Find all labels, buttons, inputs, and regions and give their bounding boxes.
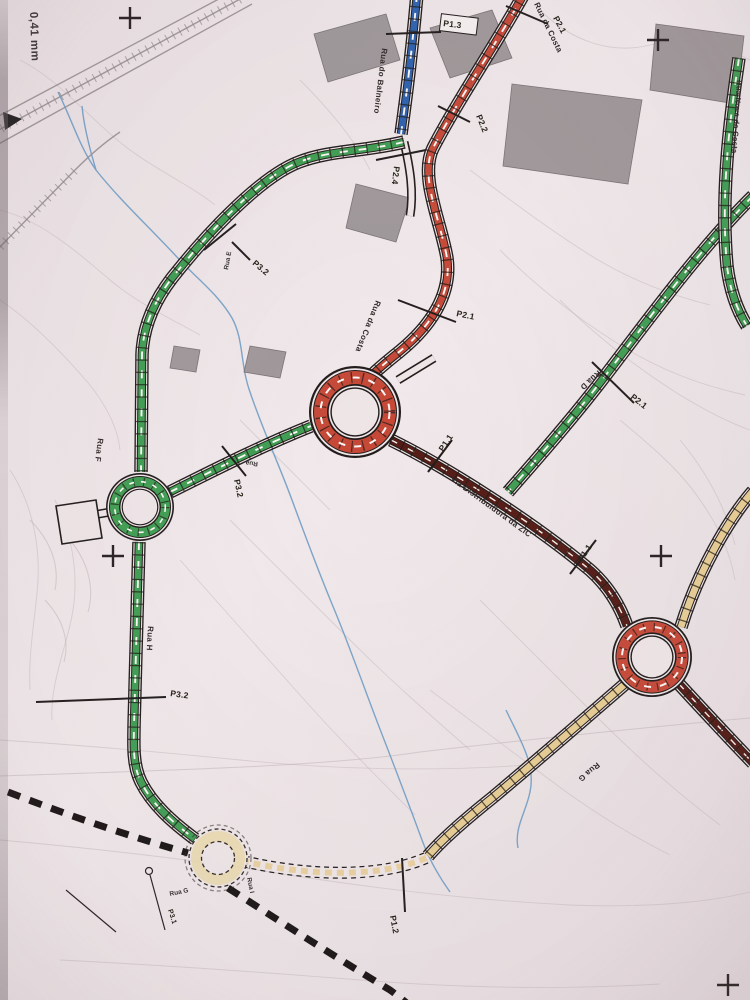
- photo-vignette: [0, 0, 750, 1000]
- paper-edge-shadow: [0, 0, 8, 1000]
- map-plan: Rua do Balneiro Rua da Costa Rua da Cost…: [0, 0, 750, 1000]
